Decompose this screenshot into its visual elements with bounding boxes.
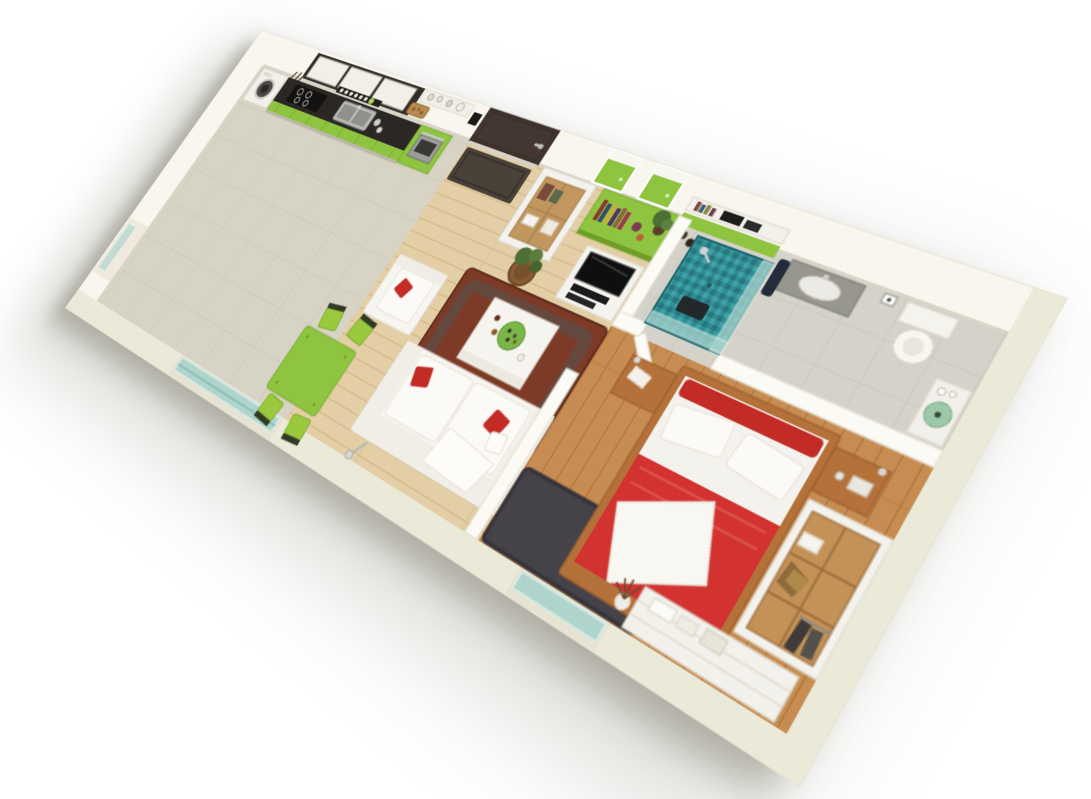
apartment-plan bbox=[65, 30, 1068, 788]
white-throw bbox=[607, 502, 715, 586]
floor-plan-render bbox=[0, 0, 1091, 799]
